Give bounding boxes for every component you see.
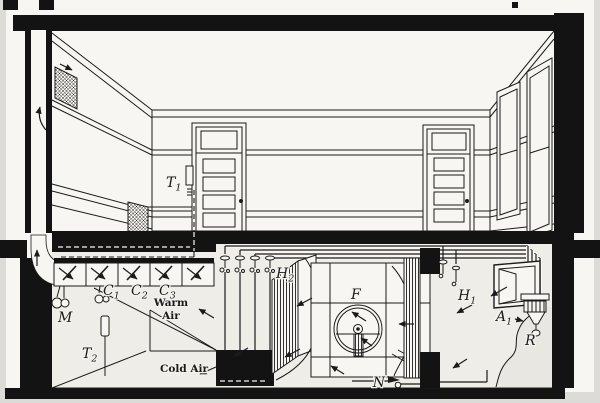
label-fan: F xyxy=(350,287,362,303)
roof-beam xyxy=(13,15,556,31)
door-left xyxy=(192,123,246,231)
label-cold-air: Cold Air xyxy=(160,363,208,375)
ground-line xyxy=(5,388,565,399)
floor-slab xyxy=(216,231,554,244)
door-knob xyxy=(239,199,243,203)
heating-ventilation-section-figure: T1 C1 C2 C3 M T2 Warm Air Cold Air H2 F … xyxy=(0,0,600,403)
left-ledge xyxy=(0,240,27,258)
door-knob xyxy=(465,199,469,203)
label-regulator-r: R xyxy=(524,333,536,349)
basement-right-wall xyxy=(552,233,574,388)
label-warm-air: Warm xyxy=(153,297,188,309)
label-motor: M xyxy=(57,310,73,326)
label-trap-n: N xyxy=(372,375,386,391)
floor-slab xyxy=(52,231,216,252)
engraving-page: T1 C1 C2 C3 M T2 Warm Air Cold Air H2 F … xyxy=(0,0,600,403)
mixing-damper-box xyxy=(54,258,214,286)
right-ledge xyxy=(574,240,600,258)
door-right xyxy=(423,125,474,231)
label-warm-air: Air xyxy=(161,310,180,322)
right-wall xyxy=(554,13,584,233)
